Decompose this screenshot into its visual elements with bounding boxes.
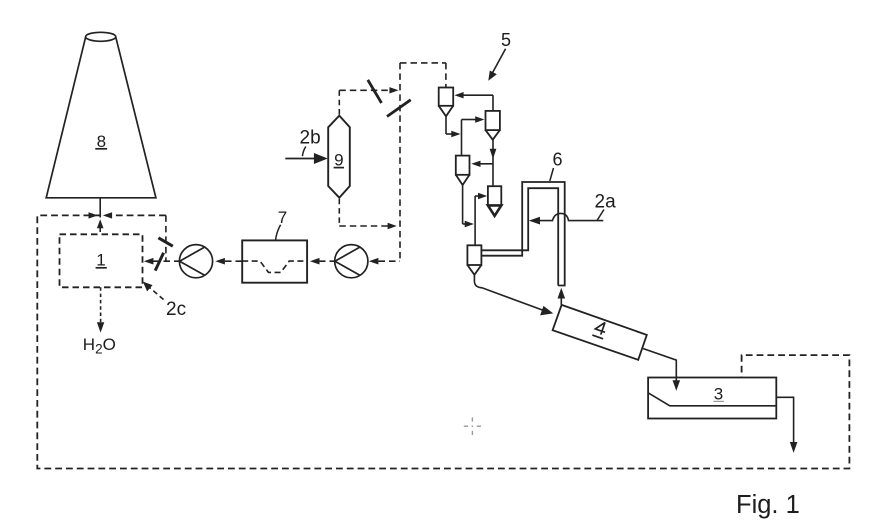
svg-text:2b: 2b	[300, 128, 321, 149]
svg-text:3: 3	[714, 384, 723, 403]
svg-text:1: 1	[96, 250, 105, 269]
svg-text:Fig. 1: Fig. 1	[736, 491, 800, 519]
svg-text:9: 9	[334, 150, 343, 169]
svg-text:7: 7	[278, 208, 287, 227]
svg-text:5: 5	[501, 30, 511, 50]
svg-text:6: 6	[552, 149, 562, 169]
svg-text:2c: 2c	[166, 299, 186, 320]
svg-text:2a: 2a	[595, 191, 617, 212]
svg-text:H2O: H2O	[83, 335, 116, 357]
